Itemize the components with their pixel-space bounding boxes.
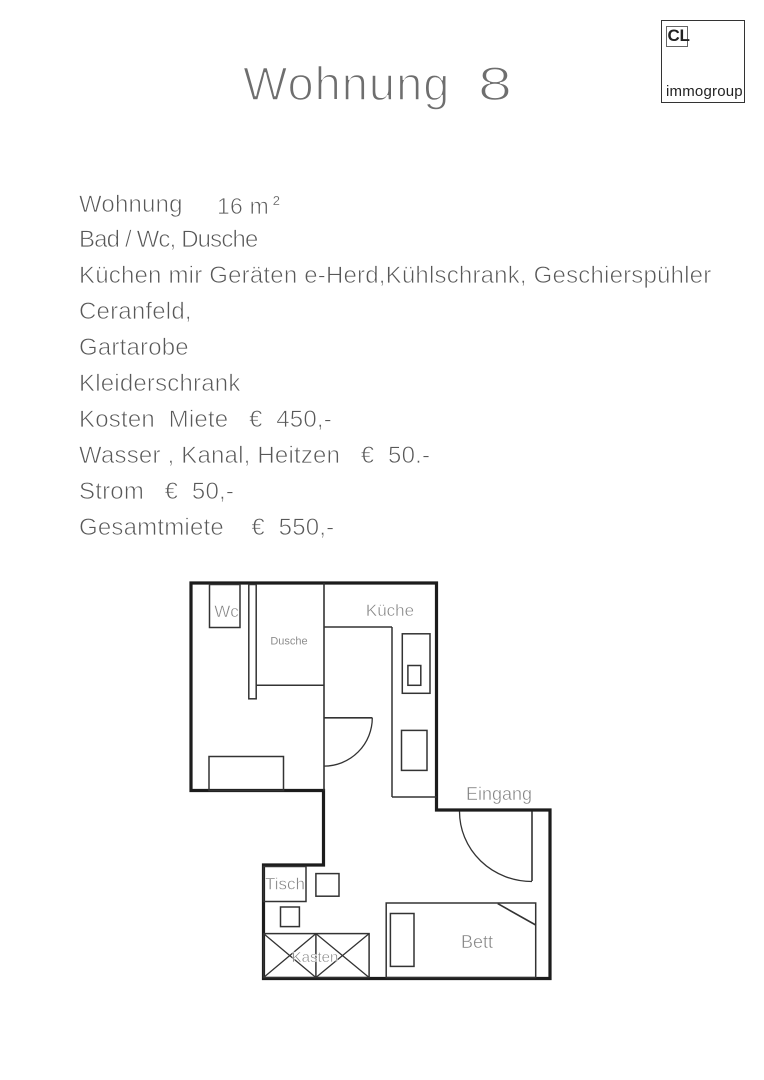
svg-text:Dusche: Dusche xyxy=(270,636,307,648)
svg-text:Eingang: Eingang xyxy=(466,784,532,804)
svg-text:Tisch: Tisch xyxy=(265,875,305,894)
svg-text:Kasten: Kasten xyxy=(292,949,339,966)
svg-text:Küche: Küche xyxy=(366,601,414,620)
svg-text:Bett: Bett xyxy=(461,932,493,952)
svg-text:Wc: Wc xyxy=(214,602,239,621)
